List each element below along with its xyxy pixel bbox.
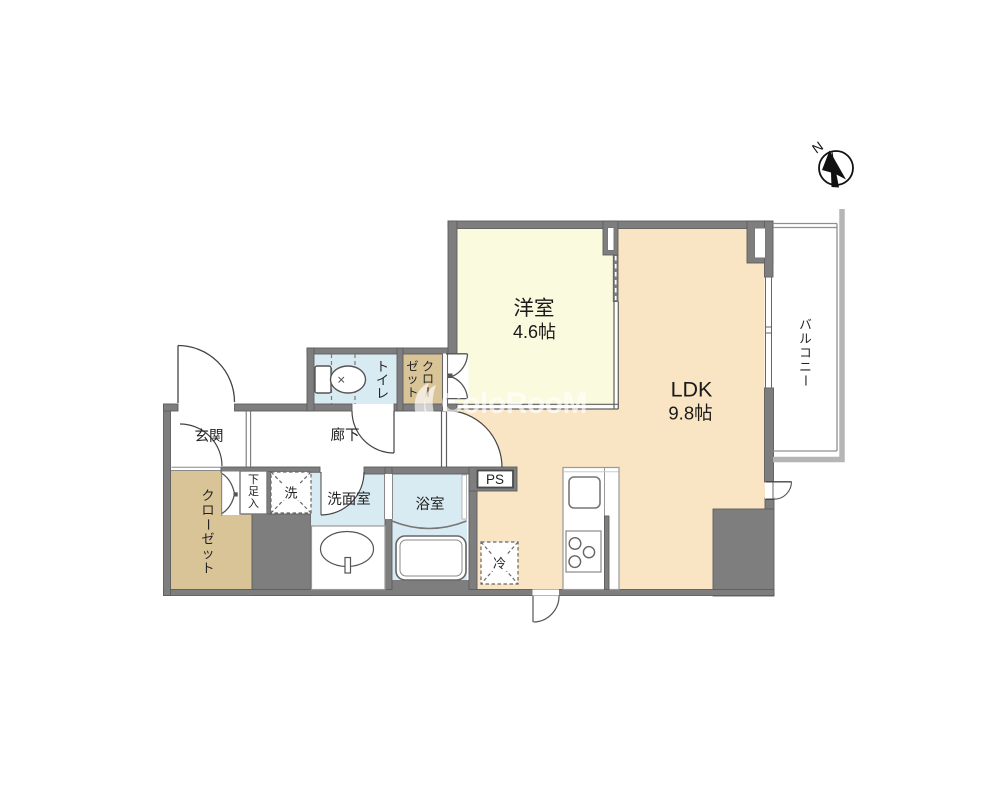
- svg-text:ク: ク: [201, 488, 214, 503]
- svg-text:9.8帖: 9.8帖: [668, 403, 712, 424]
- svg-text:洋室: 洋室: [514, 297, 555, 320]
- svg-text:ッ: ッ: [406, 372, 418, 386]
- svg-text:ル: ル: [799, 332, 812, 346]
- svg-text:バ: バ: [799, 318, 812, 332]
- svg-text:洗面室: 洗面室: [327, 491, 371, 508]
- svg-text:ー: ー: [201, 518, 216, 531]
- svg-text:玄関: 玄関: [195, 428, 224, 445]
- svg-text:LDK: LDK: [671, 378, 713, 402]
- svg-text:ー: ー: [798, 374, 812, 387]
- svg-text:ColoRooM: ColoRooM: [441, 387, 587, 420]
- svg-text:ニ: ニ: [799, 360, 812, 374]
- svg-text:ト: ト: [201, 561, 214, 576]
- svg-text:PS: PS: [486, 472, 504, 487]
- svg-text:廊下: 廊下: [331, 427, 360, 444]
- svg-text:ロ: ロ: [201, 503, 214, 518]
- svg-text:浴室: 浴室: [416, 496, 445, 513]
- svg-text:ッ: ッ: [201, 546, 214, 561]
- svg-text:洗: 洗: [284, 486, 297, 501]
- svg-text:下: 下: [248, 474, 259, 486]
- svg-text:コ: コ: [799, 346, 812, 360]
- svg-text:足: 足: [248, 486, 259, 498]
- svg-text:ゼ: ゼ: [201, 532, 214, 547]
- svg-text:入: 入: [248, 498, 259, 510]
- svg-text:冷: 冷: [493, 556, 506, 571]
- svg-text:4.6帖: 4.6帖: [513, 322, 556, 342]
- svg-text:レ: レ: [376, 386, 389, 401]
